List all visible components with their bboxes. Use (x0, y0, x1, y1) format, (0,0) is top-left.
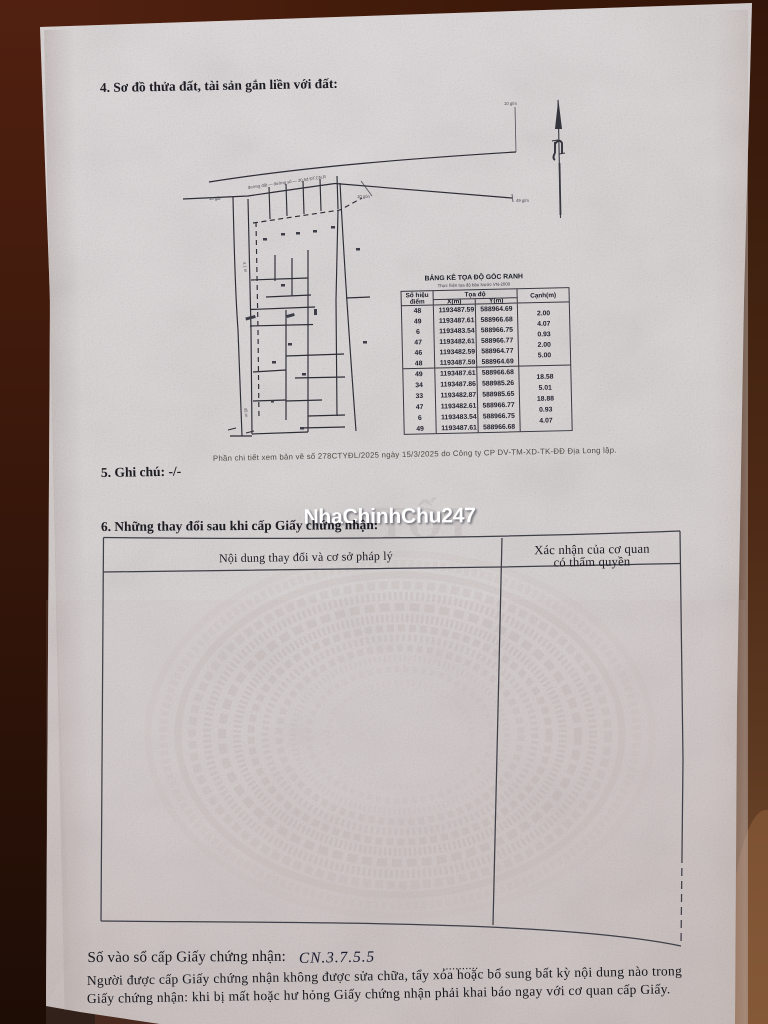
svg-text:1193483.54: 1193483.54 (439, 328, 475, 336)
svg-text:49: 49 (414, 318, 422, 325)
svg-text:10 gòn: 10 gòn (357, 194, 370, 199)
svg-text:588985.26: 588985.26 (482, 380, 514, 388)
svg-text:588966.75: 588966.75 (483, 413, 515, 421)
svg-text:điểm: điểm (410, 297, 425, 305)
svg-text:49 g/m: 49 g/m (516, 198, 529, 203)
svg-text:18.88: 18.88 (537, 395, 554, 402)
svg-text:49: 49 (415, 371, 423, 378)
svg-text:46: 46 (415, 350, 423, 357)
svg-text:1193482.87: 1193482.87 (441, 392, 477, 400)
svg-text:có thẩm quyền: có thẩm quyền (553, 554, 630, 569)
svg-text:2.00: 2.00 (538, 342, 552, 349)
svg-text:CN.3.7.5.5: CN.3.7.5.5 (299, 948, 376, 967)
svg-text:1193487.61: 1193487.61 (441, 425, 477, 433)
svg-text:1193487.59: 1193487.59 (440, 359, 476, 367)
svg-text:588966.77: 588966.77 (481, 337, 513, 345)
svg-text:5.00: 5.00 (538, 352, 552, 359)
svg-text:18.58: 18.58 (536, 374, 553, 381)
svg-text:33: 33 (416, 393, 424, 400)
svg-text:1193487.61: 1193487.61 (439, 317, 475, 325)
svg-text:4.07: 4.07 (539, 417, 553, 424)
svg-text:5.01: 5.01 (539, 385, 553, 392)
svg-text:48: 48 (415, 360, 423, 367)
svg-text:588966.75: 588966.75 (481, 327, 513, 335)
svg-text:0.93: 0.93 (539, 406, 553, 413)
svg-text:10 g/m: 10 g/m (504, 101, 517, 106)
svg-text:588985.65: 588985.65 (482, 391, 514, 399)
svg-text:6: 6 (418, 415, 422, 422)
svg-text:1193482.59: 1193482.59 (440, 349, 476, 357)
svg-text:47: 47 (414, 339, 422, 346)
svg-text:1193483.54: 1193483.54 (441, 414, 477, 422)
svg-text:34: 34 (415, 382, 423, 389)
svg-text:2.00: 2.00 (537, 310, 551, 317)
svg-text:588966.68: 588966.68 (482, 369, 514, 377)
svg-text:588964.69: 588964.69 (480, 306, 512, 314)
svg-text:Tọa độ: Tọa độ (465, 291, 486, 298)
svg-text:48: 48 (414, 308, 422, 315)
svg-text:6: 6 (416, 329, 420, 336)
svg-text:Số vào sổ cấp Giấy chứng nhận:: Số vào sổ cấp Giấy chứng nhận: (87, 949, 286, 966)
svg-text:1193487.59: 1193487.59 (439, 307, 475, 315)
svg-text:1193487.86: 1193487.86 (440, 381, 476, 389)
svg-text:Y(m): Y(m) (489, 297, 503, 304)
svg-text:588966.68: 588966.68 (483, 424, 515, 432)
svg-text:5. Ghi chú: -/-: 5. Ghi chú: -/- (101, 464, 182, 480)
svg-text:0.93: 0.93 (537, 331, 551, 338)
svg-text:Nội dung thay đổi và cơ sở phá: Nội dung thay đổi và cơ sở pháp lý (219, 549, 393, 565)
svg-text:588966.77: 588966.77 (482, 402, 514, 410)
svg-text:4.07: 4.07 (537, 321, 551, 328)
svg-text:588964.77: 588964.77 (481, 348, 513, 356)
svg-text:Cạnh(m): Cạnh(m) (530, 292, 556, 300)
svg-text:X(m): X(m) (447, 298, 461, 305)
svg-text:47: 47 (416, 404, 424, 411)
svg-text:1193482.61: 1193482.61 (439, 338, 475, 346)
svg-text:6. Những thay đổi sau khi cấp: 6. Những thay đổi sau khi cấp Giấy chứng… (101, 517, 378, 534)
svg-text:588966.68: 588966.68 (481, 316, 513, 324)
svg-text:49: 49 (416, 426, 424, 433)
svg-text:1193487.61: 1193487.61 (440, 370, 476, 378)
svg-text:1193482.61: 1193482.61 (441, 403, 477, 411)
svg-text:10 går: 10 går (209, 196, 221, 201)
svg-text:588964.69: 588964.69 (481, 358, 513, 366)
